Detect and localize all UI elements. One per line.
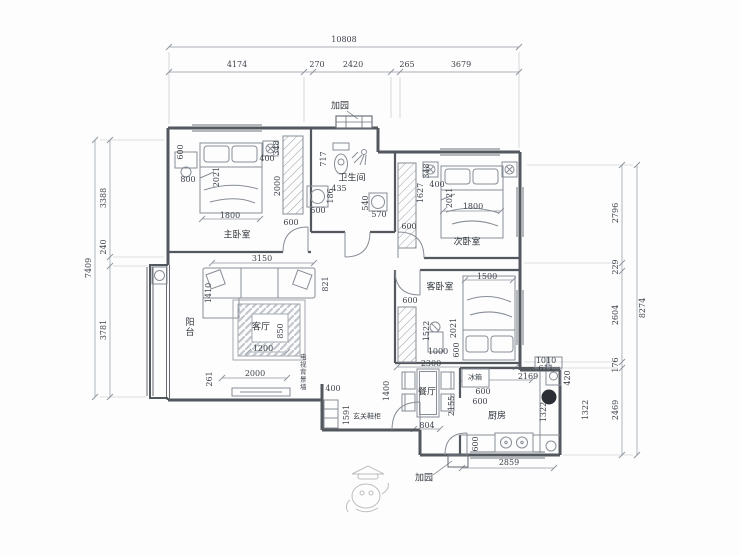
dim-label: 717 (320, 151, 328, 166)
dim-label: 1627 (417, 183, 425, 203)
dim-label: 348 (273, 140, 281, 155)
sink-small-icon (369, 193, 387, 211)
dim-top-seg: 265 (399, 61, 414, 69)
doors (283, 227, 467, 455)
dim-label: 1800 (220, 212, 240, 220)
mascot-graphic (346, 466, 388, 512)
tv-wall-label: 电视背景墙 (299, 353, 306, 391)
dim-left-seg: 240 (100, 239, 108, 254)
room-label-balcony: 阳台 (184, 317, 193, 337)
master-wardrobe (283, 136, 303, 214)
dim-label: 2859 (499, 459, 519, 467)
dim-label: 348 (423, 163, 431, 178)
dim-label: 600 (453, 342, 461, 357)
dim-label: 400 (259, 155, 274, 163)
dim-label: 1500 (477, 273, 497, 281)
dim-label: 1800 (463, 203, 483, 211)
balcony-walls (147, 265, 170, 398)
dim-top-seg: 4174 (227, 61, 247, 69)
dim-label: 850 (277, 323, 285, 338)
shoe-cabinet (324, 400, 338, 428)
dim-label: 1522 (423, 321, 431, 341)
dim-label: 1000 (428, 348, 448, 356)
dim-label: 420 (564, 370, 572, 385)
dim-label: 2169 (518, 373, 538, 381)
dim-top-seg: 2420 (343, 61, 363, 69)
dim-label: 3150 (252, 255, 272, 263)
dim-top-total: 10808 (331, 36, 356, 44)
dim-label: 1322 (582, 400, 590, 420)
dim-label: 261 (206, 371, 214, 386)
room-label-second-bedroom: 次卧室 (453, 239, 480, 248)
dim-label: 600 (402, 297, 417, 305)
dim-label: 540 (362, 195, 370, 210)
entry-cabinet-label: 玄关鞋柜 (353, 414, 381, 421)
dim-label: 600 (475, 388, 490, 396)
garden-label-bottom: 加园 (415, 475, 433, 484)
dim-right-seg: 2604 (612, 305, 620, 325)
dim-left-seg: 3388 (100, 188, 108, 208)
dim-label: 804 (419, 422, 434, 430)
dim-label: 400 (429, 181, 444, 189)
dim-label: 611 (538, 365, 553, 373)
dim-label: 600 (283, 219, 298, 227)
dim-right-seg: 2469 (612, 400, 620, 420)
second-nightstand-right (502, 162, 517, 177)
dim-label: 1591 (343, 405, 351, 425)
room-label-guest-bedroom: 客卧室 (426, 284, 453, 293)
dim-right-seg: 176 (612, 357, 620, 372)
dim-label: 1410 (205, 283, 213, 303)
dim-right-seg: 2796 (612, 203, 620, 223)
toilet-icon (333, 143, 349, 174)
room-label-kitchen: 厨房 (488, 413, 506, 422)
dim-label: 400 (325, 385, 340, 393)
dim-label: 500 (310, 207, 325, 215)
shower-icon (352, 150, 367, 166)
dim-label: 600 (177, 144, 185, 159)
dim-label: 186 (327, 188, 335, 203)
fridge-label: 冰箱 (468, 375, 482, 382)
garden-label-top: 加园 (331, 103, 349, 112)
dim-label: 2155 (448, 396, 456, 416)
dim-right-seg: 229 (612, 259, 620, 274)
dim-label: 1322 (540, 402, 548, 422)
dim-label: 2021 (446, 188, 454, 208)
tv-cabinet (232, 388, 290, 396)
dim-label: 1400 (383, 381, 391, 401)
balcony-appliance (152, 267, 167, 284)
dim-left-seg: 3781 (100, 320, 108, 340)
garden-box-bottom (433, 455, 468, 475)
dim-label: 821 (322, 276, 330, 291)
dim-label: 570 (371, 211, 386, 219)
dim-label: 600 (401, 223, 416, 231)
dim-top-seg: 270 (309, 61, 324, 69)
dim-label: 1200 (253, 345, 273, 353)
room-label-master-bedroom: 主卧室 (223, 232, 250, 241)
guest-bed (463, 276, 515, 360)
dim-top-seg: 3679 (451, 61, 471, 69)
dim-label: 2000 (245, 370, 265, 378)
dimension-lines (92, 44, 640, 471)
stove (495, 433, 533, 452)
dim-label: 800 (180, 176, 195, 184)
dim-right-total: 8274 (639, 298, 647, 318)
second-wardrobe (398, 163, 416, 248)
floor-plan-drawing (0, 0, 740, 555)
dim-label: 2000 (274, 176, 282, 196)
floor-plan: 10808 4174 270 2420 265 3679 7409 3388 2… (0, 0, 740, 555)
dim-label: 2021 (213, 167, 221, 187)
master-bed (200, 143, 262, 213)
guest-wardrobe (398, 307, 416, 362)
dim-label: 2300 (421, 360, 441, 368)
dim-label: 600 (472, 398, 487, 406)
garden-box-top (336, 111, 372, 128)
dim-label: 600 (472, 436, 480, 451)
dim-left-total: 7409 (85, 258, 93, 278)
room-label-dining-room: 餐厅 (418, 389, 436, 398)
dim-label: 2021 (450, 318, 458, 338)
room-label-living-room: 客厅 (252, 324, 270, 333)
windows (192, 125, 545, 458)
room-label-bathroom: 卫生间 (338, 175, 365, 184)
